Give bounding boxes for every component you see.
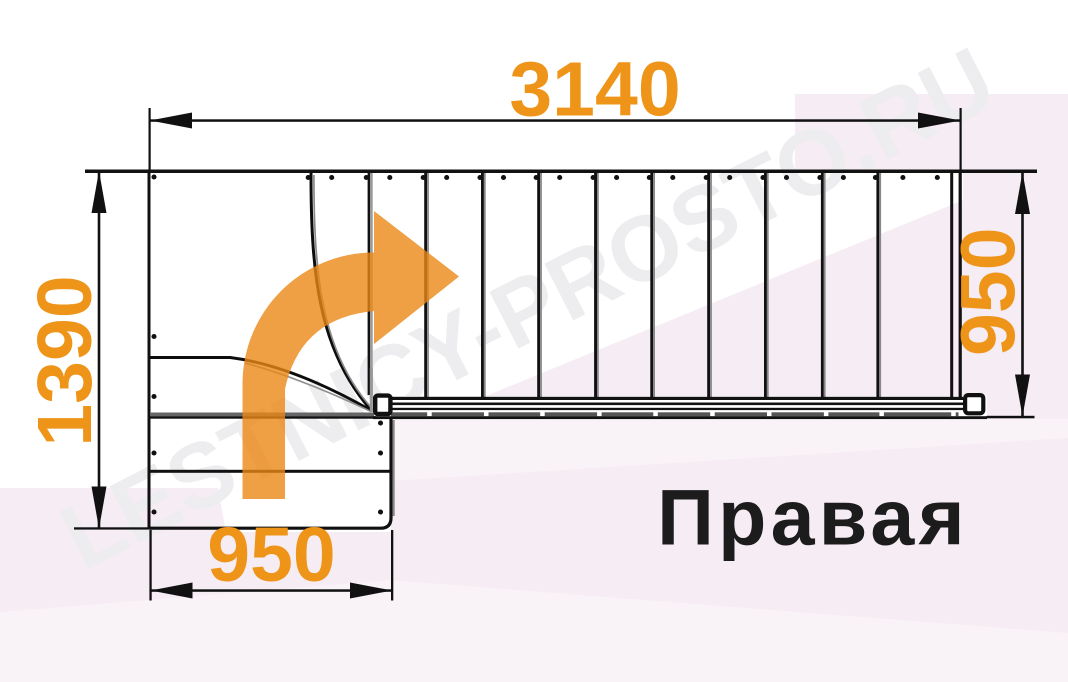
- svg-text:Правая: Правая: [657, 473, 969, 562]
- svg-text:950: 950: [946, 227, 1032, 355]
- svg-text:3140: 3140: [509, 47, 680, 133]
- svg-text:950: 950: [207, 512, 335, 598]
- svg-text:1390: 1390: [22, 275, 108, 446]
